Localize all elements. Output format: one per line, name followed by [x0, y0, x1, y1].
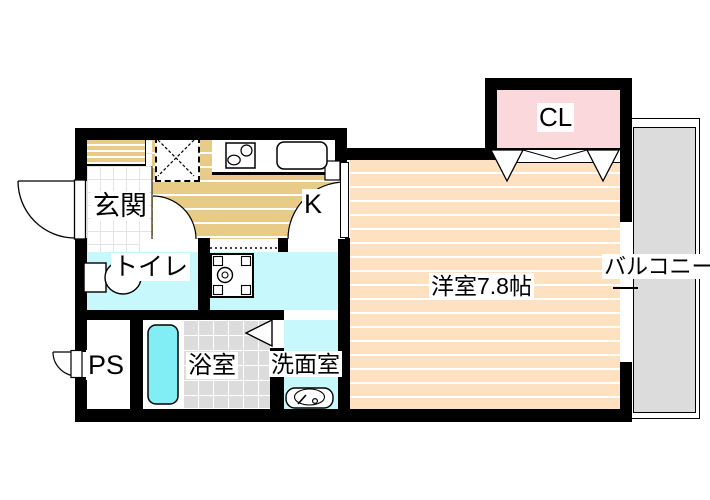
kitchen-sink — [277, 142, 327, 169]
floor-plan: 玄関 K トイレ PS 浴室 洗面室 洋室7.8帖 CL バルコニー — [0, 0, 710, 500]
label-genkan: 玄関 — [91, 191, 149, 221]
label-toilet: トイレ — [111, 253, 190, 281]
wash-basin — [286, 388, 333, 408]
label-kitchen: K — [302, 189, 324, 219]
bathroom-door-fold — [246, 320, 272, 346]
washing-machine-pan — [211, 254, 253, 297]
label-pipe-space: PS — [86, 350, 126, 380]
closet-folding-doors — [491, 150, 619, 181]
bathtub — [148, 325, 178, 404]
label-bathroom: 浴室 — [186, 352, 238, 379]
label-washroom: 洗面室 — [269, 351, 342, 377]
label-balcony: バルコニー — [602, 254, 710, 279]
plan-symbols — [0, 0, 710, 500]
entrance-door-swing — [18, 180, 86, 239]
label-main-room: 洋室7.8帖 — [429, 273, 534, 299]
label-closet: CL — [537, 103, 574, 132]
toilet-door-swing — [153, 196, 196, 239]
refrigerator-cross — [158, 140, 194, 176]
stove-icon — [226, 143, 255, 168]
ps-door-swing — [53, 351, 82, 378]
